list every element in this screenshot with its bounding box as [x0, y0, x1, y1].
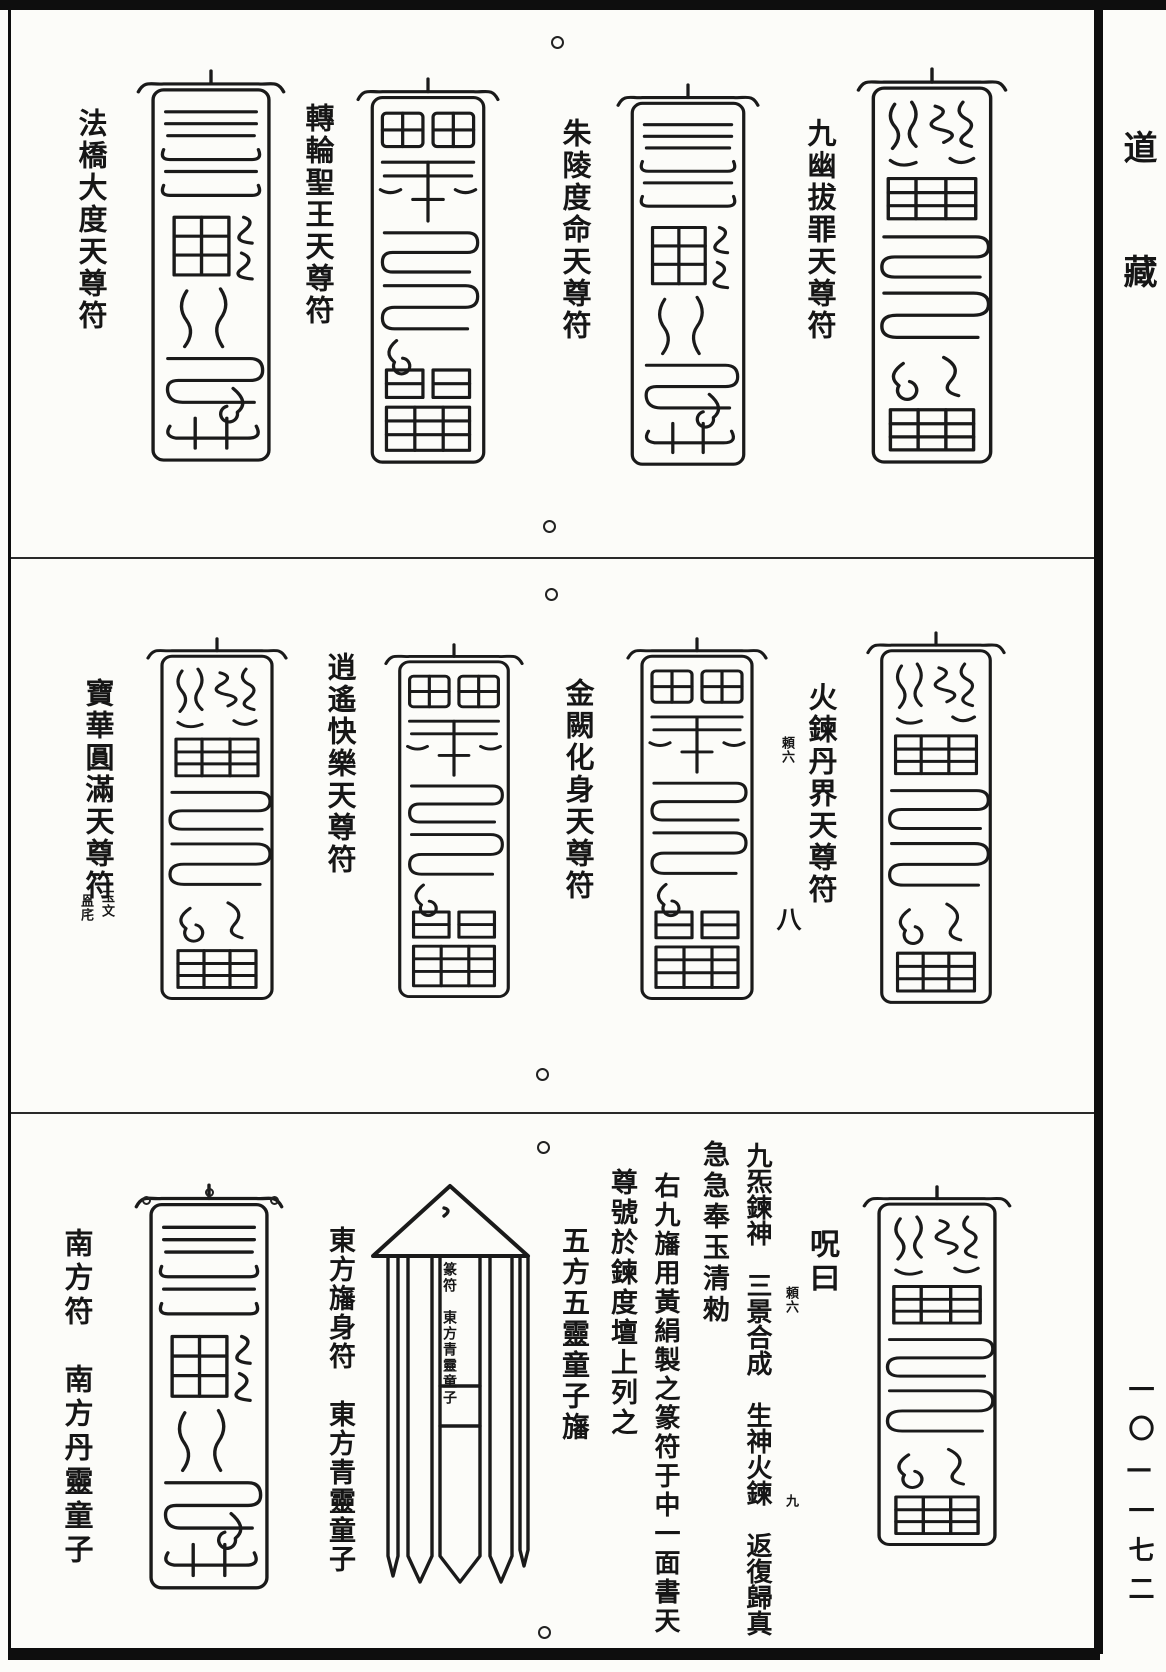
banner-inscription: 篆符 東方青靈童子 — [442, 1262, 456, 1406]
section-divider-1 — [11, 557, 1094, 559]
talisman-5 — [142, 636, 292, 1004]
incantation-annotation: 九 — [784, 1494, 797, 1508]
left-border — [8, 8, 11, 1654]
talisman-annotation: 𥁕㡯 — [79, 894, 92, 922]
right-border — [1094, 4, 1103, 1654]
bottom-border — [8, 1648, 1100, 1660]
top-border — [0, 0, 1166, 10]
incantation-column-2: 急急奉玉清勑 — [700, 1140, 727, 1326]
margin-collection-title: 道藏 — [1120, 130, 1154, 378]
talisman-south — [130, 1182, 288, 1594]
talisman-label: 逍遙快樂天尊符 — [325, 652, 354, 876]
hat-dot — [270, 1196, 279, 1205]
circle-mark — [538, 1626, 551, 1639]
talisman-annotation: 玉文 — [100, 890, 113, 918]
incantation-column-3: 右九旛用黃絹製之篆符于中一面書天 — [652, 1172, 678, 1636]
circle-mark — [543, 520, 556, 533]
talisman-6 — [380, 642, 528, 1002]
circle-mark — [551, 36, 564, 49]
incantation-column-5: 五方五靈童子旛 — [560, 1226, 588, 1443]
talisman-label: 轉輪聖王天尊符 — [303, 103, 332, 327]
talisman-7 — [622, 636, 772, 1004]
talisman-label: 法橋大度天尊符 — [76, 108, 105, 332]
talisman-label: 金闕化身天尊符 — [563, 678, 592, 902]
banner-label: 東方旛身符 東方青靈童子 — [326, 1226, 353, 1574]
talisman-annotation: 頼六 — [780, 736, 793, 764]
daozang-scanned-page: 道藏 一〇—一七二 法橋大度天尊符 轉輪聖王天尊符 朱陵度命天尊符 九幽拔罪天尊… — [0, 0, 1166, 1672]
hat-dot — [142, 1196, 151, 1205]
circle-mark — [545, 588, 558, 601]
incantation-column-1: 九炁鍊神 三景合成 生神火鍊 返復歸真 — [744, 1142, 770, 1636]
talisman-label: 九幽拔罪天尊符 — [805, 118, 834, 342]
talisman-4 — [852, 66, 1012, 468]
incantation-column-4: 尊號於鍊度壇上列之 — [608, 1168, 635, 1438]
talisman-10 — [858, 1184, 1016, 1550]
talisman-label: 南方符 南方丹靈童子 — [62, 1228, 91, 1568]
talisman-1 — [132, 68, 290, 466]
page-number: 一〇—一七二 — [1126, 1376, 1152, 1614]
talisman-label: 寶華圓滿天尊符 — [83, 678, 112, 902]
incantation-heading: 呪曰 — [806, 1228, 836, 1296]
talisman-2 — [352, 76, 504, 468]
incantation-annotation: 頼六 — [784, 1286, 797, 1314]
talisman-3 — [612, 82, 764, 470]
circle-mark — [536, 1068, 549, 1081]
section-divider-2 — [11, 1112, 1094, 1114]
talisman-label: 火鍊丹界天尊符 — [806, 682, 835, 906]
hat-dot — [205, 1188, 214, 1197]
column-marker: 八 — [775, 906, 800, 931]
talisman-label: 朱陵度命天尊符 — [560, 118, 589, 342]
circle-mark — [537, 1141, 550, 1154]
talisman-8 — [862, 630, 1010, 1008]
